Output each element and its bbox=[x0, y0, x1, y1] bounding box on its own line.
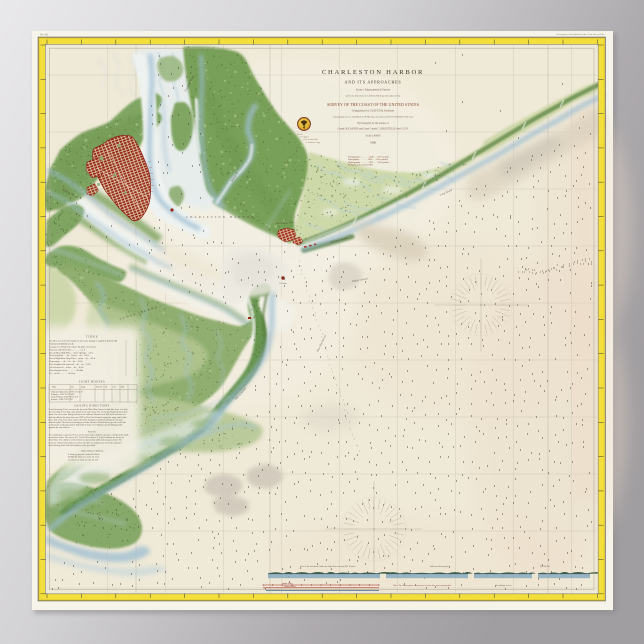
svg-text:Note: The datum plane of refer: Note: The datum plane of reference is me… bbox=[393, 584, 451, 587]
svg-text:half a mile of the Fort, when: half a mile of the Fort, when a pilot wi… bbox=[49, 418, 123, 421]
svg-text:Nautical Miles: Nautical Miles bbox=[284, 586, 296, 588]
svg-text:Rise of High Water Neap Tides: Rise of High Water Neap Tides . . mean .… bbox=[49, 357, 95, 360]
svg-text:Photographed and published at: Photographed and published at the Coast … bbox=[556, 33, 605, 36]
svg-text:Ft Sumter: Ft Sumter bbox=[278, 282, 287, 285]
svg-text:without a pilot. The flood set: without a pilot. The flood sets strongly… bbox=[49, 421, 126, 424]
svg-text:Neaps range . . . do . .: Neaps range . . . do . . do . . do . . 3… bbox=[49, 360, 83, 363]
svg-text:Lat.: Lat. bbox=[71, 387, 75, 389]
svg-text:Mean rise and fall of tides .: Mean rise and fall of tides . . . . . . … bbox=[49, 348, 85, 351]
svg-text:Hydrography by the parties of: Hydrography by the parties of bbox=[357, 122, 388, 125]
svg-text:Vis.: Vis. bbox=[113, 387, 117, 389]
svg-text:Long.: Long. bbox=[81, 386, 86, 389]
svg-text:scale of which this: scale of which this bbox=[303, 138, 318, 141]
svg-text:Statute Miles: Statute Miles bbox=[282, 583, 293, 585]
svg-text:under the direction of A.D.BAC: under the direction of A.D.BACHE Superin… bbox=[345, 95, 400, 98]
svg-text:Fall of lowest do . . below: Fall of lowest do . . below . . do . . 0… bbox=[49, 366, 84, 369]
svg-text:Triangulation . . . . . . . 18: Triangulation . . . . . . . 1849 . . . 6… bbox=[348, 156, 389, 159]
svg-text:NOTE: NOTE bbox=[88, 431, 96, 434]
svg-text:Abbreviations of Bottoms: Abbreviations of Bottoms bbox=[81, 450, 104, 453]
svg-text:G. Gravel wh. white fne. fi: G. Gravel wh. white fne. fine sft. soft bbox=[68, 458, 98, 461]
svg-text:Scale 1:40000: Scale 1:40000 bbox=[366, 135, 381, 138]
svg-text:The tides are referred to in p: The tides are referred to in plane of lo… bbox=[49, 340, 118, 343]
svg-text:a wide berth. Anchorage may be: a wide berth. Anchorage may be had insid… bbox=[49, 424, 124, 427]
svg-text:Sullivans Isl bearing W: Sullivans Isl bearing W bbox=[430, 565, 449, 568]
svg-text:hand entering, black with odd: hand entering, black with odd numbers on… bbox=[49, 444, 97, 447]
svg-text:Dist.: Dist. bbox=[121, 387, 125, 389]
svg-text:Hydrography . . . . . . . 1851: Hydrography . . . . . . . 1851 . . . 310… bbox=[348, 161, 389, 164]
svg-text:about 5 feet less water. Bring: about 5 feet less water. Bring the Beaco… bbox=[49, 413, 127, 416]
svg-text:CHARLESTON HARBOR: CHARLESTON HARBOR bbox=[186, 215, 255, 219]
svg-text:dotted lines. The character of: dotted lines. The character of the botto… bbox=[49, 439, 123, 442]
svg-text:Reduced and verified 1866: Reduced and verified 1866 bbox=[348, 164, 374, 167]
svg-text:at mean low water. The curves: at mean low water. The curves of 6, 12 a… bbox=[49, 436, 125, 439]
svg-text:AND ITS APPROACHES: AND ITS APPROACHES bbox=[345, 80, 402, 85]
svg-text:Mt Pleasant: Mt Pleasant bbox=[275, 222, 288, 225]
svg-text:Bull Isl NW: Bull Isl NW bbox=[540, 566, 550, 568]
svg-text:LIGHT HOUSES: LIGHT HOUSES bbox=[79, 381, 105, 384]
svg-text:Topography by E.A.GEORGE C.FEN: Topography by E.A.GEORGE C.FENDALL and o… bbox=[333, 116, 413, 119]
svg-text:Mean duration of rise . . .: Mean duration of rise . . . . . . . . 6h… bbox=[49, 369, 83, 372]
svg-text:1866: 1866 bbox=[370, 141, 377, 145]
svg-text:TIDES: TIDES bbox=[86, 335, 99, 339]
svg-text:Name: Name bbox=[52, 387, 57, 389]
svg-text:Fixed or: Fixed or bbox=[96, 387, 103, 389]
svg-text:Average rise of high water abo: Average rise of high water above the pla… bbox=[49, 345, 96, 348]
svg-text:No. 431: No. 431 bbox=[40, 34, 49, 37]
svg-text:not exceeding 16 feet may ente: not exceeding 16 feet may enter at high … bbox=[49, 411, 128, 414]
svg-text:buoys are colored and numbered: buoys are colored and numbered so that r… bbox=[49, 441, 123, 444]
svg-text:until up with the bar buoy; th: until up with the bar buoy; then steer N… bbox=[49, 416, 127, 419]
svg-text:Vessels drawing 10 feet can cr: Vessels drawing 10 feet can cross the ba… bbox=[49, 408, 129, 411]
svg-text:Triangulation by J.S.RUTH & As: Triangulation by J.S.RUTH & Assistants bbox=[352, 110, 394, 113]
svg-text:Do . . of fall . . . .: Do . . of fall . . . . . . . . 6h 16m bbox=[49, 372, 75, 375]
svg-text:M. Mud bk. black crs. coar: M. Mud bk. black crs. coarse Oz. Ooze bbox=[68, 457, 99, 459]
svg-text:Rise of Mean High Water . .: Rise of Mean High Water . . above Spring… bbox=[49, 351, 93, 354]
svg-text:Comdr. B.F.SANDS and Lieut Com: Comdr. B.F.SANDS and Lieut Comdr C.O.BOU… bbox=[337, 128, 409, 131]
svg-text:Charleston Establishment 4h: Charleston Establishment 4h bbox=[49, 343, 75, 345]
svg-text:View of the land about Charles: View of the land about Charleston Light … bbox=[300, 565, 356, 568]
svg-text:Soundings in feet: Soundings in feet bbox=[496, 584, 512, 587]
svg-text:opposite the city wharves.: opposite the city wharves. bbox=[49, 427, 71, 429]
svg-text:S. Sand gy. gray brk. brok: S. Sand gy. gray brk. broken Sh. Shells bbox=[68, 453, 99, 456]
svg-text:From a Trigonometrical Survey: From a Trigonometrical Survey bbox=[356, 89, 391, 92]
svg-text:Beacons . 32 44 79 51 F: Beacons . 32 44 79 51 F 28 7 bbox=[51, 399, 73, 401]
svg-text:SAILING DIRECTIONS: SAILING DIRECTIONS bbox=[74, 405, 109, 408]
svg-text:of original: of original bbox=[300, 136, 309, 139]
svg-text:Rise of highest tide observed: Rise of highest tide observed . . do . .… bbox=[49, 363, 91, 366]
svg-text:Do of neap tides . . . do: Do of neap tides . . . do . . below . . … bbox=[49, 354, 89, 357]
svg-text:is a reduced copy: is a reduced copy bbox=[306, 142, 320, 144]
svg-text:CHARLESTON HARBOR: CHARLESTON HARBOR bbox=[322, 69, 424, 76]
svg-text:SURVEY OF THE COAST OF THE UNI: SURVEY OF THE COAST OF THE UNITED STATES bbox=[327, 102, 420, 107]
svg-text:Topography . . . . . . . 1850: Topography . . . . . . . 1850 . . . 185 … bbox=[348, 158, 388, 161]
svg-text:The soundings are expressed in: The soundings are expressed in feet on t… bbox=[49, 434, 130, 437]
